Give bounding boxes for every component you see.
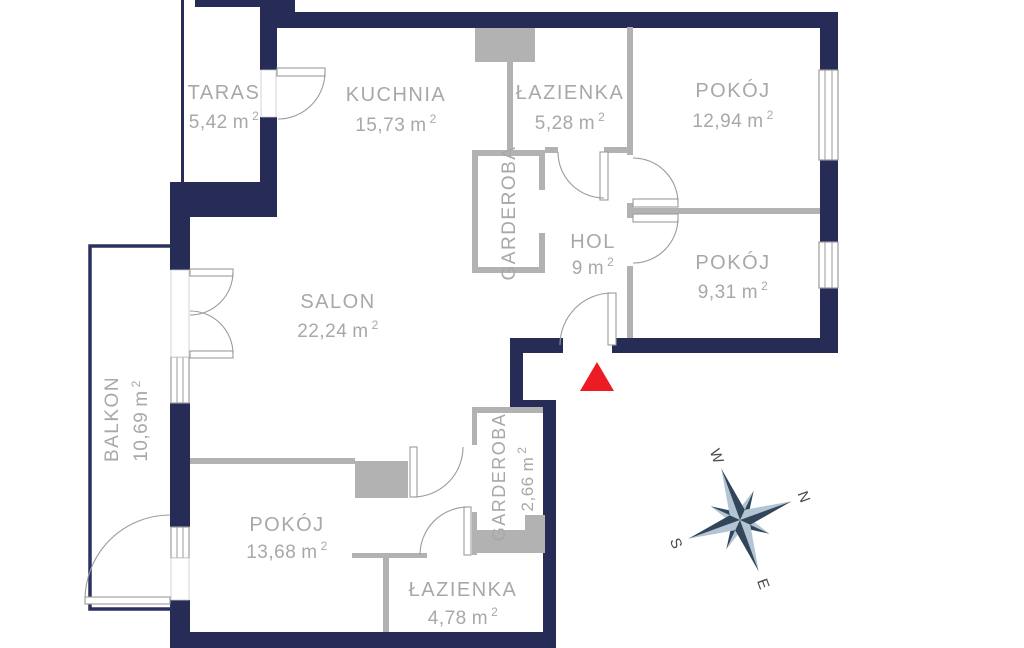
floor-plan-svg: TARAS 5,42m2 KUCHNIA 15,73m2 ŁAZIENKA 5,… (0, 0, 1024, 648)
label-kuchnia: KUCHNIA (346, 84, 447, 106)
area-hol: 9m2 (572, 255, 615, 279)
bathroom-lower-door (420, 507, 471, 555)
fixtures (355, 28, 545, 553)
window-right-lower (819, 242, 838, 288)
terrace-outline (181, 0, 184, 184)
compass-n: N (794, 489, 814, 505)
wardrobe-box (355, 461, 408, 498)
label-garderoba-hol: GARDEROBA (499, 146, 520, 281)
kitchen-shaft (475, 28, 535, 62)
area-garderoba-dolna: 2,66m2 (515, 447, 537, 512)
floor-plan: TARAS 5,42m2 KUCHNIA 15,73m2 ŁAZIENKA 5,… (0, 0, 1024, 648)
area-taras: 5,42m2 (189, 109, 260, 133)
closet-box-small (525, 515, 545, 530)
area-kuchnia: 15,73m2 (355, 112, 437, 136)
label-pokoj-gorny: POKÓJ (695, 79, 770, 102)
label-pokoj-srodkowy: POKÓJ (695, 251, 770, 274)
area-balkon: 10,69m2 (129, 380, 152, 462)
label-garderoba-dolna: GARDEROBA (489, 413, 509, 542)
balcony-french-door (171, 269, 233, 358)
compass-w: W (706, 447, 727, 467)
entrance-marker (580, 362, 614, 391)
window-left-bedroom (171, 527, 189, 558)
label-lazienka-dolna: ŁAZIENKA (409, 579, 518, 601)
window-left-salon (171, 357, 189, 403)
label-pokoj-dolny: POKÓJ (249, 513, 324, 536)
label-taras: TARAS (188, 82, 261, 104)
compass-s: S (666, 536, 685, 551)
terrace-door (261, 68, 325, 119)
area-lazienka-dolna: 4,78m2 (428, 605, 499, 629)
bathroom-upper-door (558, 152, 608, 200)
area-salon: 22,24m2 (297, 318, 379, 342)
room-upper-door (633, 158, 678, 207)
label-hol: HOL (570, 231, 616, 253)
area-pokoj-srodkowy: 9,31m2 (698, 279, 769, 303)
room-middle-door (633, 214, 678, 263)
label-balkon: BALKON (102, 376, 123, 462)
compass-e: E (753, 576, 772, 591)
label-lazienka-gorna: ŁAZIENKA (516, 82, 625, 104)
label-salon: SALON (300, 291, 375, 313)
area-pokoj-gorny: 12,94m2 (692, 108, 774, 132)
area-lazienka-gorna: 5,28m2 (535, 110, 606, 134)
compass-rose: N E S W (642, 423, 836, 614)
window-right-upper (819, 70, 838, 160)
entrance-door (560, 293, 616, 345)
corridor-door (410, 447, 463, 497)
closet-box (477, 530, 545, 553)
area-pokoj-dolny: 13,68m2 (246, 539, 328, 563)
